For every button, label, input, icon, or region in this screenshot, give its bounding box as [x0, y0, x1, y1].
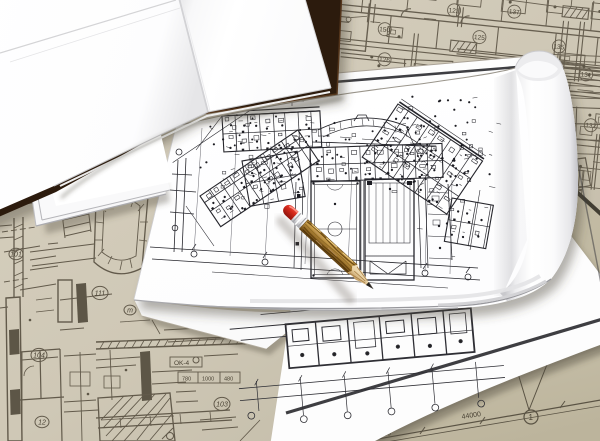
svg-text:135: 135 — [553, 43, 565, 51]
svg-text:103: 103 — [216, 402, 228, 409]
svg-text:OK-4: OK-4 — [174, 360, 190, 367]
svg-text:137: 137 — [508, 9, 520, 17]
svg-text:m: m — [127, 308, 133, 315]
svg-text:480: 480 — [224, 377, 233, 383]
svg-text:101: 101 — [10, 252, 22, 259]
svg-text:12: 12 — [38, 420, 46, 427]
svg-text:780: 780 — [182, 377, 191, 383]
svg-text:111: 111 — [95, 291, 106, 298]
svg-text:150: 150 — [379, 26, 391, 34]
svg-text:1: 1 — [529, 413, 534, 422]
svg-text:1000: 1000 — [202, 377, 214, 383]
svg-text:125: 125 — [474, 34, 486, 42]
